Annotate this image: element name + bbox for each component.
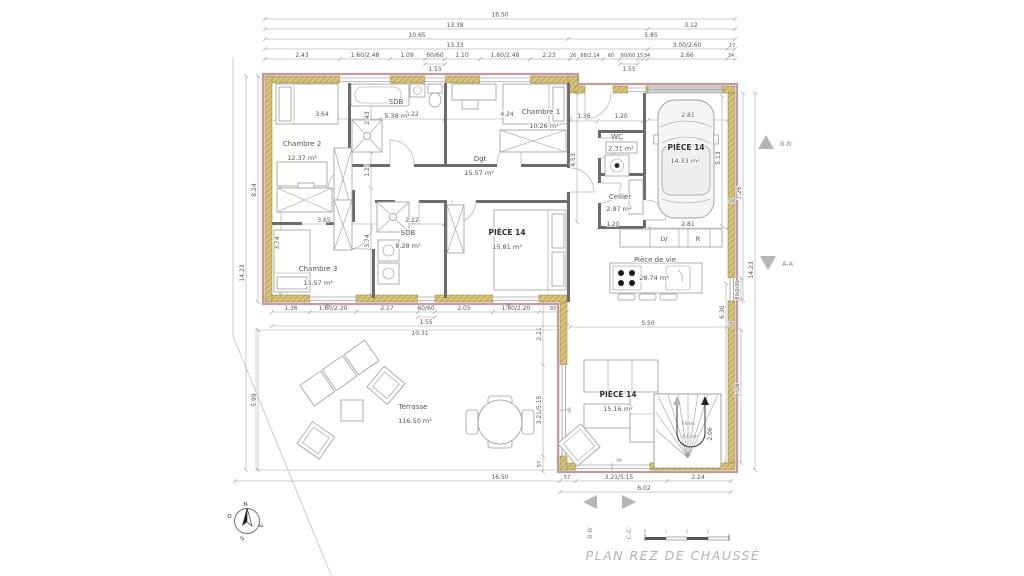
window: [628, 86, 646, 93]
desk: [452, 84, 496, 100]
dim-label: 5.85: [644, 32, 658, 39]
floor-plan-canvas: 16.50 13.38 3.12 10.65 5.85 13.33 3.00/2…: [0, 0, 1024, 576]
dim-label: 1.55: [428, 66, 442, 73]
dim-label: 15: [637, 53, 643, 59]
dim-label: 2.66: [680, 52, 694, 59]
dim-label: 93: [550, 306, 556, 312]
dim-label: 26: [570, 53, 576, 59]
stool: [660, 294, 677, 300]
section-label-cc-bottom: C-C': [625, 526, 633, 539]
dim-label: 34: [728, 53, 734, 59]
dim-label: 1.36: [577, 113, 591, 120]
dim-label: 2.06: [707, 427, 714, 441]
dim-label: 6.18: [734, 383, 741, 397]
dim-label: 57: [537, 461, 543, 467]
dim-label: 2.24: [691, 474, 705, 481]
window: [340, 76, 390, 83]
section-arrow-cc-bottom: [622, 495, 636, 509]
window-tag: VR: [616, 458, 622, 463]
compass-s: S: [240, 535, 246, 542]
dim-label: 1.20: [614, 113, 628, 120]
dishwasher-label: LV: [660, 235, 668, 243]
room-area-wc: 2.31 m²: [608, 145, 634, 153]
bed: [276, 84, 338, 124]
washbasin: [378, 263, 399, 284]
dim-label: 1.36: [284, 305, 298, 312]
dim-label: 1.60/2.48: [491, 52, 520, 59]
room-name-piece14-garage: PIÈCE 14: [667, 143, 704, 152]
room-name-dgt: Dgt: [474, 155, 487, 163]
sliding-window: [576, 463, 650, 470]
dim-label: 2.05: [457, 305, 471, 312]
dim-label: 3.12: [684, 22, 698, 29]
section-arrow-bb-right: [758, 135, 774, 149]
plan-title: PLAN REZ DE CHAUSSÉ: [586, 548, 761, 563]
dim-label: 17: [729, 43, 735, 49]
dim-label: 7.26: [736, 186, 743, 200]
desk: [277, 162, 327, 186]
room-area-piece-de-vie: 28.74 m²: [639, 274, 669, 282]
room-name-cellier: Cellier: [609, 193, 631, 201]
stool: [618, 294, 635, 300]
floor-plan-page: 16.50 13.38 3.12 10.65 5.85 13.33 3.00/2…: [0, 0, 1024, 576]
dim-label: 3.21/5.15: [605, 474, 634, 481]
garage-door: [648, 86, 723, 93]
dim-label: 1.20: [606, 221, 620, 228]
room-area-piece14-garage: 14.33 m²: [670, 157, 700, 165]
room-name-piece-de-vie: Pièce de vie: [634, 256, 676, 264]
dim-label: 3.74: [274, 236, 281, 250]
dim-label: 10.31: [411, 330, 428, 337]
dim-label: 4.24: [500, 111, 514, 118]
compass-needle: [242, 508, 247, 526]
room-name-sdb1: SDB: [389, 98, 404, 106]
room-area-chambre3: 13.57 m²: [303, 279, 333, 287]
dim-label: 2.81: [681, 221, 695, 228]
dim-label: 6.02: [637, 485, 651, 492]
dim-label: 2.81: [681, 112, 695, 119]
compass-n: N: [243, 502, 248, 509]
dim-label: 2.43: [364, 111, 371, 125]
dim-label: 1.60/2.20: [319, 305, 348, 312]
scale-tick: 3: [707, 529, 710, 534]
dim-label: 3.74: [364, 234, 371, 248]
outdoor-table: [341, 400, 363, 421]
scale-tick: 0: [644, 529, 647, 534]
dim-label: 57: [564, 475, 570, 481]
dim-label: 2.43: [295, 52, 309, 59]
dim-label: 1.09: [400, 52, 414, 59]
dim-label: 35: [728, 322, 734, 328]
room-area-chambre2: 12.37 m²: [287, 154, 317, 162]
dining-set: [466, 396, 534, 448]
room-area-piece14-chambre: 15.81 m²: [492, 243, 522, 251]
dim-label: 14.23: [748, 261, 755, 278]
wardrobe: [500, 130, 566, 152]
dim-label: 1.25: [364, 163, 371, 177]
compass-rose: N O E S: [227, 502, 266, 543]
window: [425, 76, 445, 83]
window-tag: VR: [505, 303, 511, 308]
stool: [639, 294, 656, 300]
outdoor-chair: [367, 366, 405, 404]
dim-label: 1.60/2.48: [351, 52, 380, 59]
room-area-piece14-sejour: 15.16 m²: [603, 405, 633, 413]
dim-label: 10.65: [408, 32, 425, 39]
cabinet: [277, 188, 332, 212]
dim-label: 4.53: [570, 153, 577, 167]
dim-label: 2.22: [405, 217, 419, 224]
room-name-terrasse: Terrasse: [398, 403, 428, 411]
dim-label: 3.64: [315, 111, 329, 118]
section-label-aa-right: A-A': [782, 260, 795, 268]
room-name-chambre3: Chambre 3: [299, 265, 338, 273]
dim-label: 13.38: [446, 22, 463, 29]
dim-label: 3.00/2.60: [673, 42, 702, 49]
room-name-chambre1: Chambre 1: [522, 108, 561, 116]
compass-e: E: [259, 523, 266, 528]
washing-machine: [605, 155, 629, 176]
wardrobe: [447, 205, 464, 253]
dim-label: 2.17: [380, 305, 394, 312]
dim-label: 16.50: [491, 474, 508, 481]
dim-label: 5.50: [641, 320, 655, 327]
dim-label: 34: [728, 199, 734, 205]
dim-label: 88/2.14: [580, 53, 599, 59]
section-arrow-bb-bottom: [583, 495, 597, 509]
room-area-tremie: 4.43 m²: [682, 434, 698, 439]
terrace-slab: [256, 330, 560, 470]
room-area-sdb2: 8.28 m²: [395, 242, 421, 250]
dim-label: 60/60: [621, 53, 635, 59]
window-tag: VR: [567, 407, 572, 413]
room-name-wc: WC: [611, 133, 623, 141]
dim-label: 80/2.31: [735, 280, 741, 299]
room-name-tremie: Trémie: [680, 421, 695, 426]
outdoor-sofa: [300, 340, 379, 406]
room-name-sdb2: SDB: [401, 229, 416, 237]
room-name-piece14-sejour: PIÈCE 14: [599, 390, 636, 399]
dim-label: 6.30: [719, 305, 726, 319]
dim-label: 8.24: [251, 183, 258, 197]
sofa: [584, 360, 658, 442]
dim-label: 5.13: [715, 151, 722, 165]
shower: [377, 202, 409, 232]
chair: [462, 100, 478, 109]
window: [493, 295, 539, 302]
dim-label: 16.50: [491, 12, 508, 19]
dim-label: 14.23: [239, 264, 246, 281]
plot-boundary-line: [233, 57, 331, 575]
dim-label: 60: [608, 53, 614, 59]
room-name-piece14-chambre: PIÈCE 14: [488, 228, 525, 237]
dim-label: 60/60: [426, 52, 443, 59]
section-label-bb-right: B-B': [780, 140, 793, 148]
room-name-chambre2: Chambre 2: [283, 140, 322, 148]
dim-label: 60/60: [417, 305, 434, 312]
scale-tick: 2: [686, 529, 689, 534]
room-area-dgt: 15.57 m²: [464, 169, 494, 177]
dim-label: 1.55: [419, 319, 433, 326]
washbasin: [410, 84, 425, 97]
bed: [503, 84, 567, 124]
dim-label: 1.10: [455, 52, 469, 59]
room-area-chambre1: 10.26 m²: [529, 122, 559, 130]
section-arrow-aa-right: [760, 256, 776, 270]
dim-label: 3.21/5.15: [536, 395, 543, 424]
room-area-cellier: 2.97 m²: [606, 205, 632, 213]
dim-label: 1.55: [622, 66, 636, 73]
dim-label: 3.65: [317, 217, 331, 224]
dim-label: 34: [644, 53, 650, 59]
toilet: [428, 84, 442, 107]
window: [480, 76, 530, 83]
dim-label: 2.21: [536, 327, 543, 341]
wardrobe: [334, 200, 352, 250]
kitchen-counter: [620, 229, 722, 247]
compass-o: O: [227, 513, 233, 520]
scale-bar: 0 1 2 3: [644, 529, 729, 541]
room-area-sdb1: 5.38 m²: [384, 112, 410, 120]
section-label-bb-bottom: B-B': [586, 526, 594, 539]
dim-label: 5.99: [251, 393, 258, 407]
fridge-label: R: [696, 235, 701, 243]
window: [310, 295, 356, 302]
outdoor-chair: [297, 422, 335, 460]
window: [728, 278, 735, 301]
room-area-terrasse: 116.50 m²: [398, 417, 432, 425]
window: [418, 295, 435, 302]
window-tag: VR: [324, 303, 330, 308]
dim-label: 2.23: [542, 52, 556, 59]
dim-label: 13.33: [446, 42, 463, 49]
scale-tick: 1: [665, 529, 668, 534]
